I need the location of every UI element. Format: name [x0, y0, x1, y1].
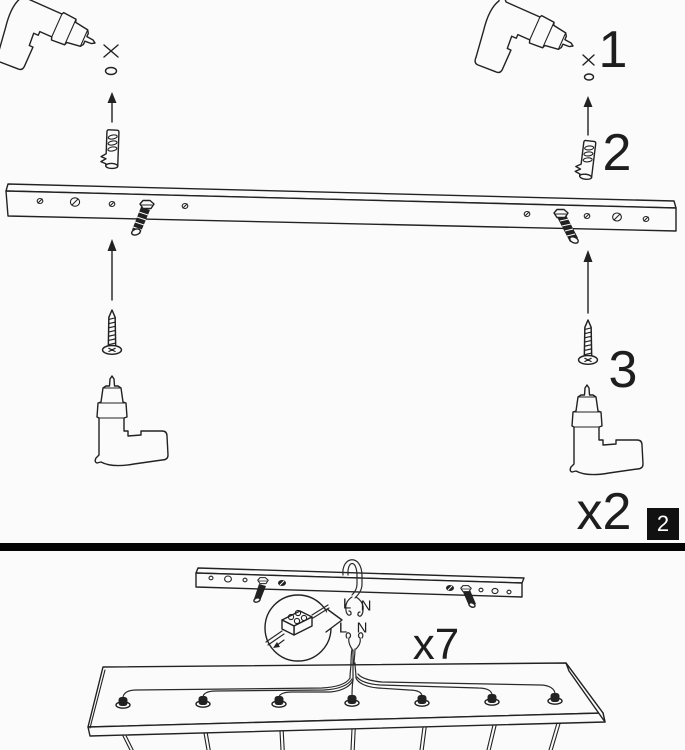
arrow-up-icon	[108, 239, 117, 300]
section-divider	[0, 543, 685, 551]
upper-live-label: L	[343, 597, 351, 612]
page-number-badge: 2	[647, 508, 679, 540]
page-number: 2	[657, 511, 669, 537]
step-2-number: 2	[603, 127, 632, 179]
instruction-page: 1 2 3 x2 2	[0, 0, 685, 750]
fixture-base	[88, 663, 605, 750]
upper-neutral-label: N	[361, 599, 372, 614]
cross-mark-icon	[104, 45, 118, 57]
drill-icon	[0, 0, 102, 94]
drill-hole-icon	[106, 68, 117, 75]
assembly-steps-illustration	[0, 0, 685, 543]
cross-mark-icon	[583, 55, 594, 65]
screw-icon	[103, 310, 122, 354]
repeat-count-bottom: x7	[413, 623, 459, 667]
detail-balloon	[265, 595, 342, 661]
wall-plug-icon	[574, 140, 596, 180]
arrow-up-icon	[108, 92, 117, 122]
step-3-number: 3	[609, 344, 638, 396]
wiring-illustration	[0, 551, 685, 750]
arrow-up-icon	[584, 96, 593, 135]
repeat-count-top: x2	[577, 486, 632, 538]
drill-icon	[95, 376, 168, 466]
arrow-up-icon	[584, 250, 593, 313]
step-1-number: 1	[599, 24, 628, 76]
lower-live-label: L	[339, 621, 347, 636]
screw-icon	[579, 320, 598, 364]
lower-neutral-label: N	[357, 621, 368, 636]
drill-hole-icon	[585, 74, 594, 80]
mounting-rail	[6, 184, 676, 244]
drill-icon	[468, 0, 579, 97]
wall-plug-icon	[101, 130, 119, 169]
